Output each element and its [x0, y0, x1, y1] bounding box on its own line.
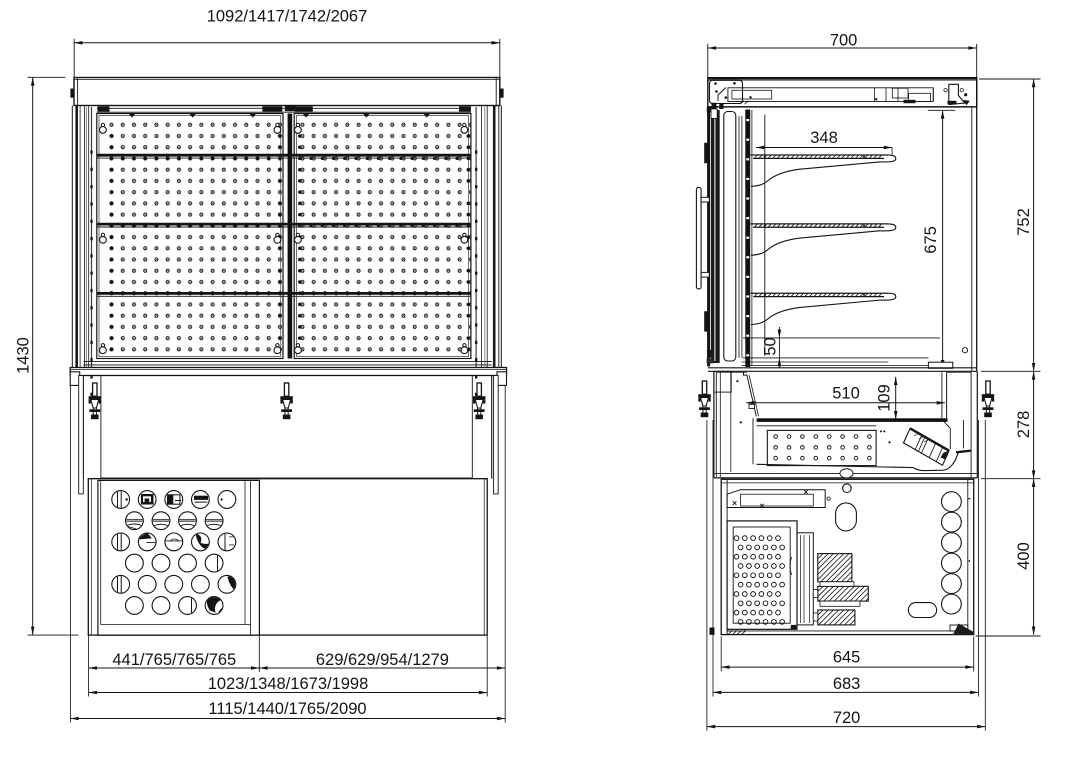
svg-text:278: 278	[1015, 411, 1033, 439]
svg-text:1115/1440/1765/2090: 1115/1440/1765/2090	[208, 700, 366, 718]
svg-text:683: 683	[833, 675, 861, 693]
svg-text:50: 50	[761, 337, 779, 355]
svg-text:400: 400	[1015, 542, 1033, 570]
svg-text:1430: 1430	[15, 337, 33, 374]
svg-text:109: 109	[876, 384, 894, 412]
svg-text:510: 510	[832, 384, 860, 402]
svg-text:700: 700	[830, 32, 858, 50]
svg-text:629/629/954/1279: 629/629/954/1279	[316, 651, 449, 669]
svg-text:441/765/765/765: 441/765/765/765	[112, 651, 236, 669]
svg-text:1092/1417/1742/2067: 1092/1417/1742/2067	[207, 8, 368, 26]
svg-text:675: 675	[922, 226, 940, 254]
svg-text:720: 720	[833, 709, 861, 727]
svg-text:645: 645	[833, 649, 861, 667]
svg-text:752: 752	[1015, 208, 1033, 236]
svg-text:1023/1348/1673/1998: 1023/1348/1673/1998	[208, 675, 369, 693]
svg-text:348: 348	[810, 129, 838, 147]
